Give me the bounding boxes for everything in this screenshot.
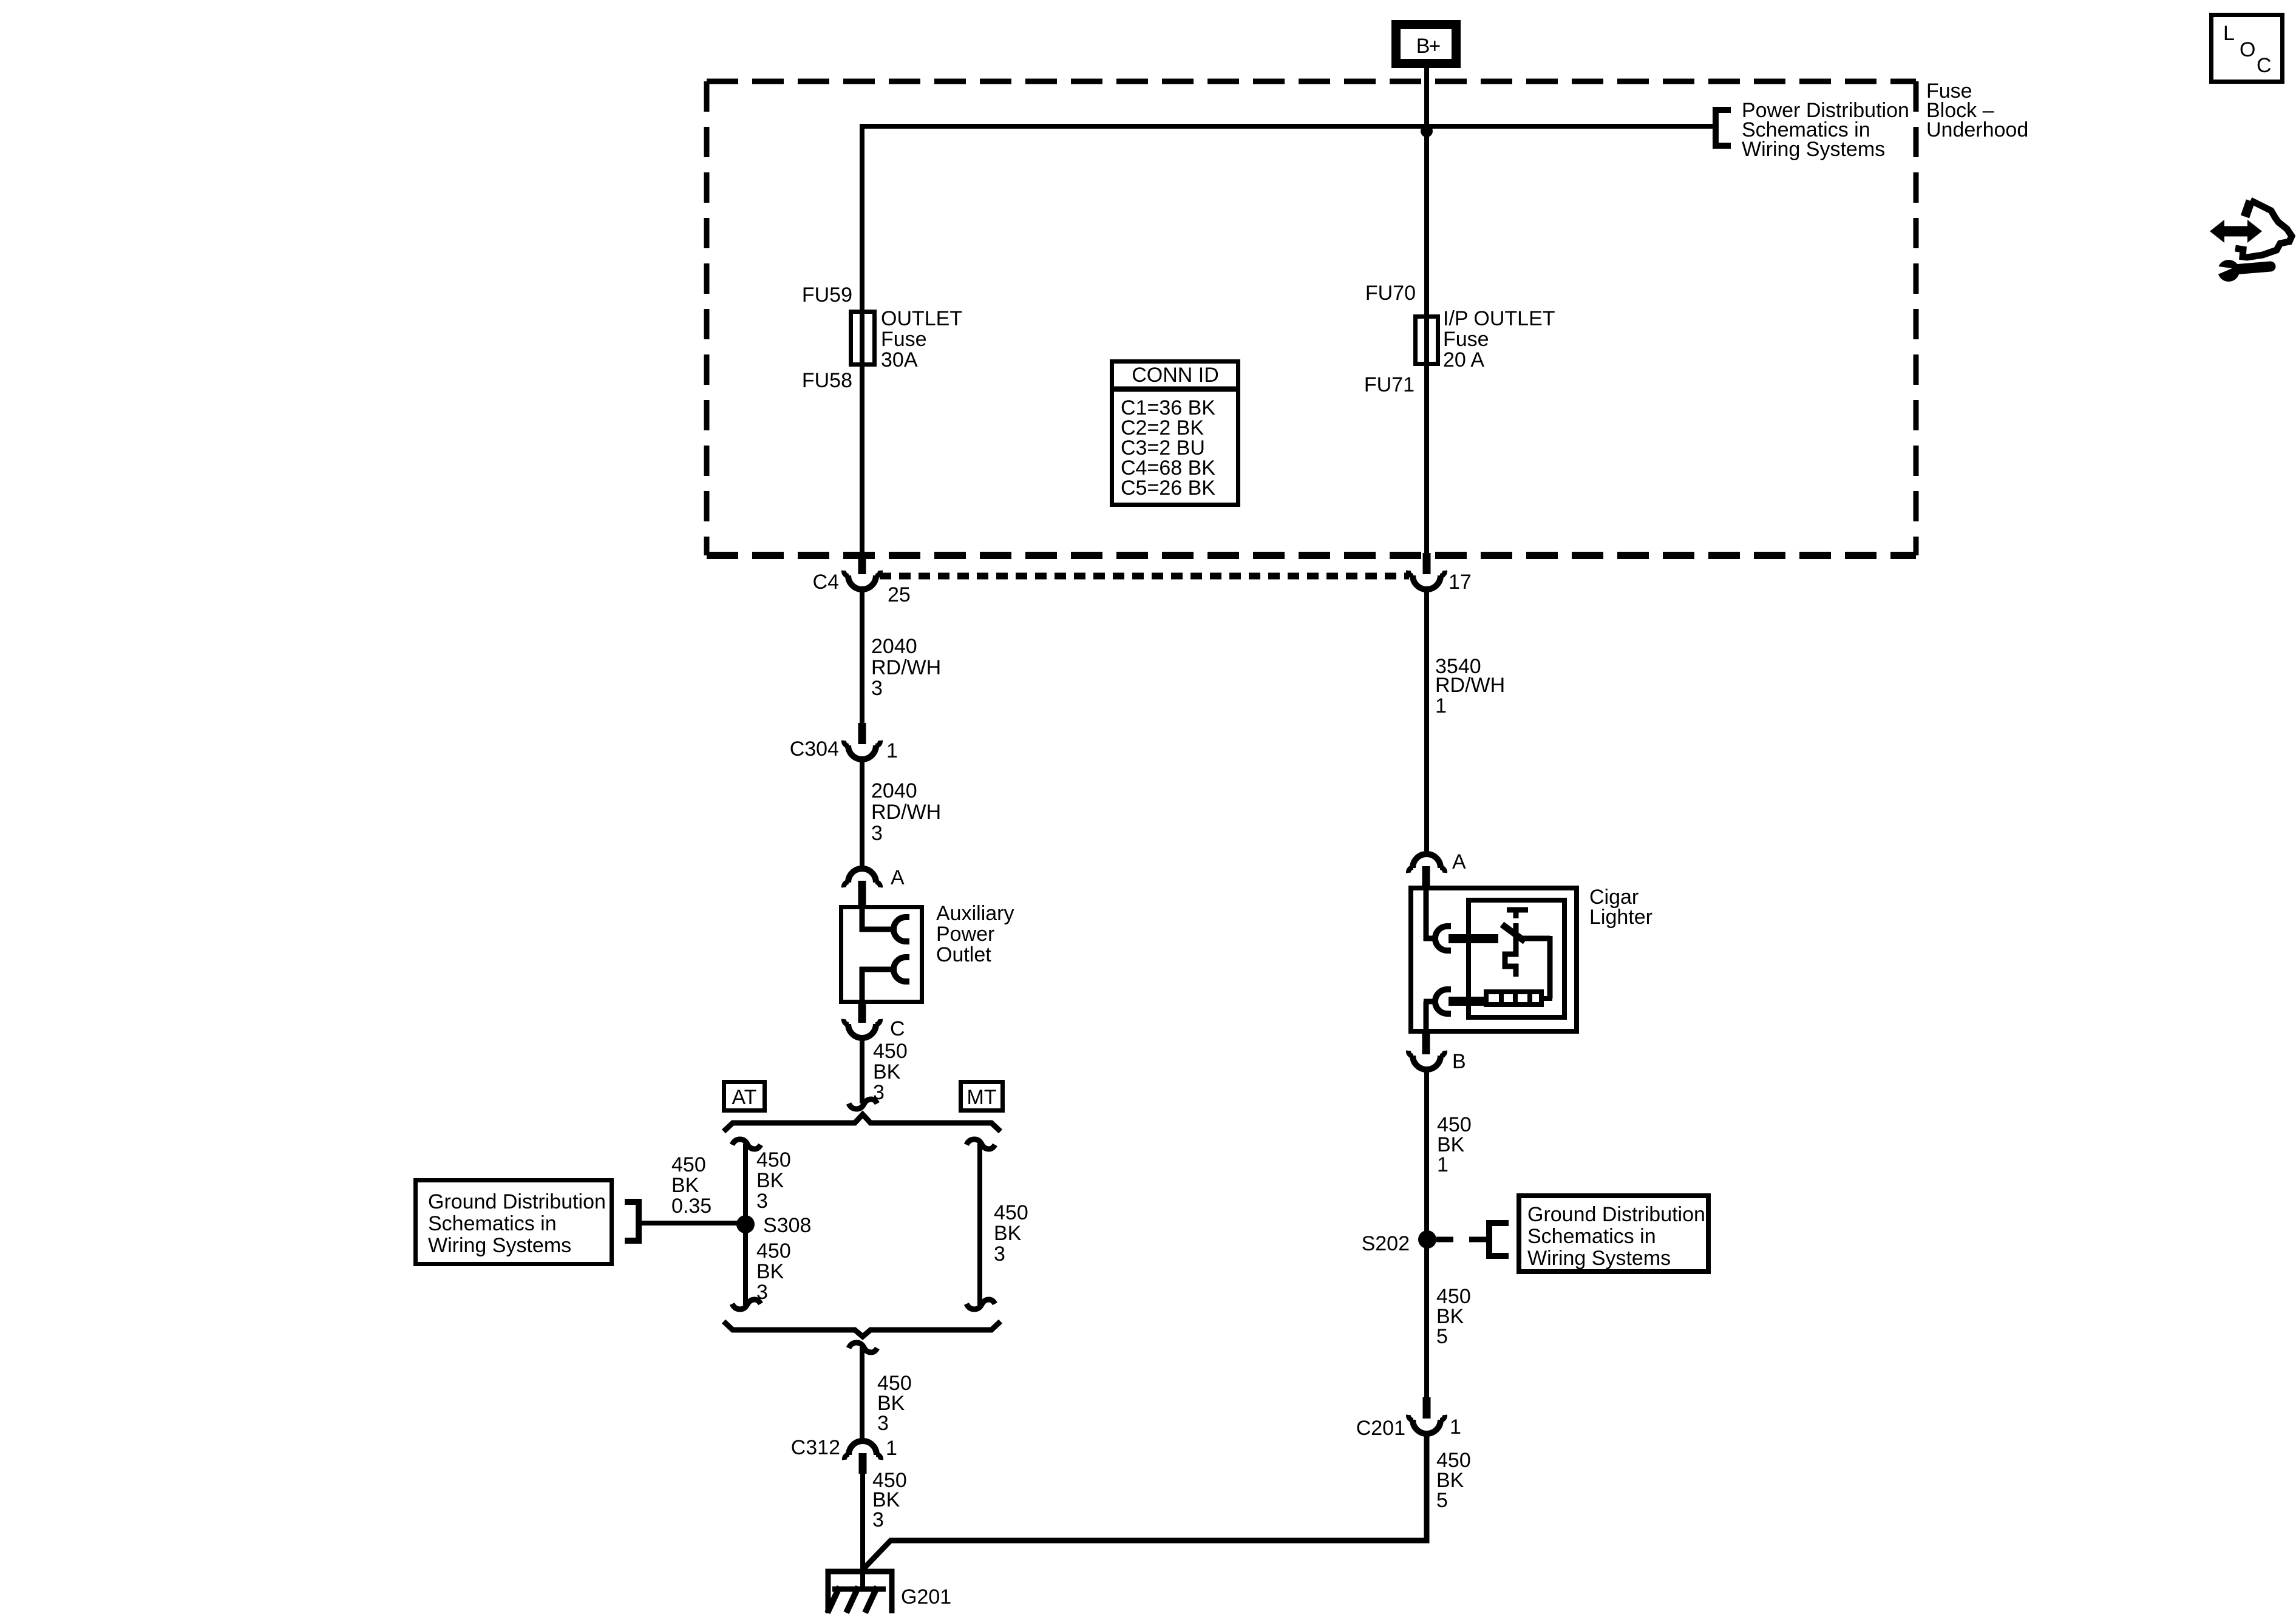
svg-text:BK: BK: [873, 1060, 901, 1083]
svg-text:Underhood: Underhood: [1926, 118, 2028, 141]
svg-text:Wiring Systems: Wiring Systems: [428, 1234, 571, 1257]
svg-text:C5=26 BK: C5=26 BK: [1121, 476, 1215, 500]
svg-text:OUTLET: OUTLET: [881, 307, 962, 330]
svg-text:MT: MT: [966, 1086, 996, 1109]
svg-text:5: 5: [1436, 1489, 1448, 1512]
svg-text:RD/WH: RD/WH: [871, 656, 941, 679]
svg-text:1: 1: [1437, 1153, 1449, 1176]
svg-text:3: 3: [877, 1412, 889, 1435]
svg-text:B+: B+: [1416, 35, 1441, 58]
svg-text:Ground Distribution: Ground Distribution: [1527, 1203, 1705, 1226]
svg-text:FU59: FU59: [802, 283, 852, 307]
svg-text:450: 450: [756, 1148, 791, 1171]
svg-text:Schematics in: Schematics in: [1527, 1225, 1656, 1248]
svg-text:450: 450: [756, 1239, 791, 1263]
svg-text:3: 3: [756, 1190, 768, 1213]
svg-text:S308: S308: [763, 1214, 811, 1237]
svg-text:CONN ID: CONN ID: [1132, 364, 1219, 387]
svg-text:L: L: [2223, 22, 2235, 45]
svg-text:Lighter: Lighter: [1589, 906, 1652, 929]
svg-text:Outlet: Outlet: [936, 943, 991, 966]
svg-text:450: 450: [671, 1153, 706, 1176]
svg-text:3: 3: [871, 822, 883, 845]
svg-text:C: C: [890, 1017, 905, 1040]
svg-text:Wiring Systems: Wiring Systems: [1742, 138, 1885, 161]
svg-text:BK: BK: [756, 1169, 784, 1192]
svg-text:RD/WH: RD/WH: [1435, 674, 1505, 697]
svg-text:450: 450: [873, 1040, 908, 1063]
svg-text:Fuse: Fuse: [881, 328, 927, 351]
svg-text:C: C: [2257, 54, 2272, 77]
svg-text:BK: BK: [756, 1260, 784, 1283]
svg-text:2040: 2040: [871, 635, 917, 658]
svg-text:G201: G201: [901, 1585, 951, 1609]
svg-text:BK: BK: [994, 1222, 1022, 1245]
svg-text:3: 3: [872, 1508, 884, 1531]
svg-text:O: O: [2240, 38, 2255, 61]
svg-text:Schematics in: Schematics in: [428, 1212, 557, 1235]
svg-text:1: 1: [1450, 1415, 1461, 1439]
svg-text:3: 3: [756, 1281, 768, 1304]
svg-text:A: A: [1452, 850, 1466, 873]
svg-text:AT: AT: [732, 1086, 757, 1109]
svg-text:A: A: [891, 866, 905, 889]
svg-text:1: 1: [1435, 694, 1447, 717]
svg-text:RD/WH: RD/WH: [871, 801, 941, 824]
svg-text:0.35: 0.35: [671, 1195, 712, 1218]
svg-text:C312: C312: [791, 1436, 840, 1459]
svg-text:1: 1: [886, 1437, 897, 1460]
svg-text:1: 1: [886, 739, 898, 762]
svg-text:BK: BK: [671, 1174, 699, 1197]
svg-text:25: 25: [888, 583, 911, 606]
svg-text:5: 5: [1436, 1325, 1448, 1348]
svg-text:Fuse: Fuse: [1443, 328, 1489, 351]
svg-text:S202: S202: [1362, 1232, 1410, 1255]
svg-text:Ground Distribution: Ground Distribution: [428, 1190, 606, 1213]
svg-text:C304: C304: [790, 737, 839, 761]
svg-text:FU70: FU70: [1365, 282, 1416, 305]
svg-text:C201: C201: [1356, 1417, 1405, 1440]
svg-text:30A: 30A: [881, 348, 918, 371]
svg-text:3: 3: [994, 1242, 1005, 1266]
svg-text:20 A: 20 A: [1443, 348, 1484, 371]
svg-text:Power: Power: [936, 923, 994, 946]
svg-text:17: 17: [1449, 571, 1472, 594]
svg-text:FU71: FU71: [1364, 373, 1415, 396]
svg-text:Wiring Systems: Wiring Systems: [1527, 1247, 1671, 1270]
svg-text:3: 3: [871, 677, 883, 700]
svg-text:2040: 2040: [871, 779, 917, 802]
svg-text:Auxiliary: Auxiliary: [936, 902, 1014, 925]
svg-text:FU58: FU58: [802, 369, 852, 392]
svg-text:C4: C4: [813, 571, 839, 594]
svg-text:B: B: [1452, 1050, 1466, 1073]
svg-text:I/P OUTLET: I/P OUTLET: [1443, 307, 1555, 330]
svg-text:450: 450: [994, 1201, 1028, 1224]
